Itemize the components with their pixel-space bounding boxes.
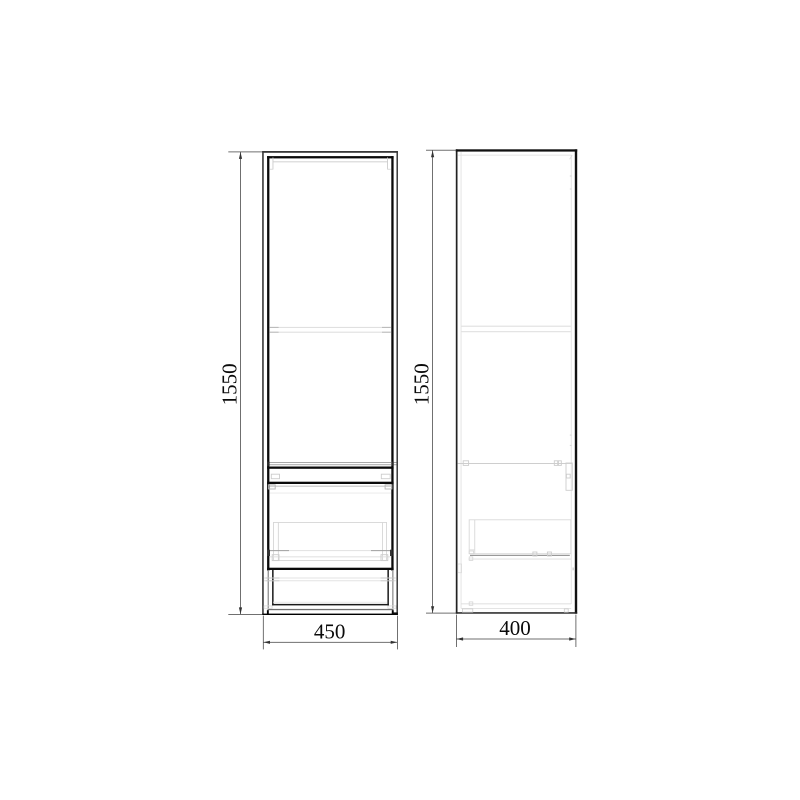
svg-text:400: 400 [499, 616, 531, 640]
svg-text:1550: 1550 [409, 363, 433, 405]
svg-text:1550: 1550 [218, 363, 242, 405]
svg-text:450: 450 [314, 619, 346, 643]
